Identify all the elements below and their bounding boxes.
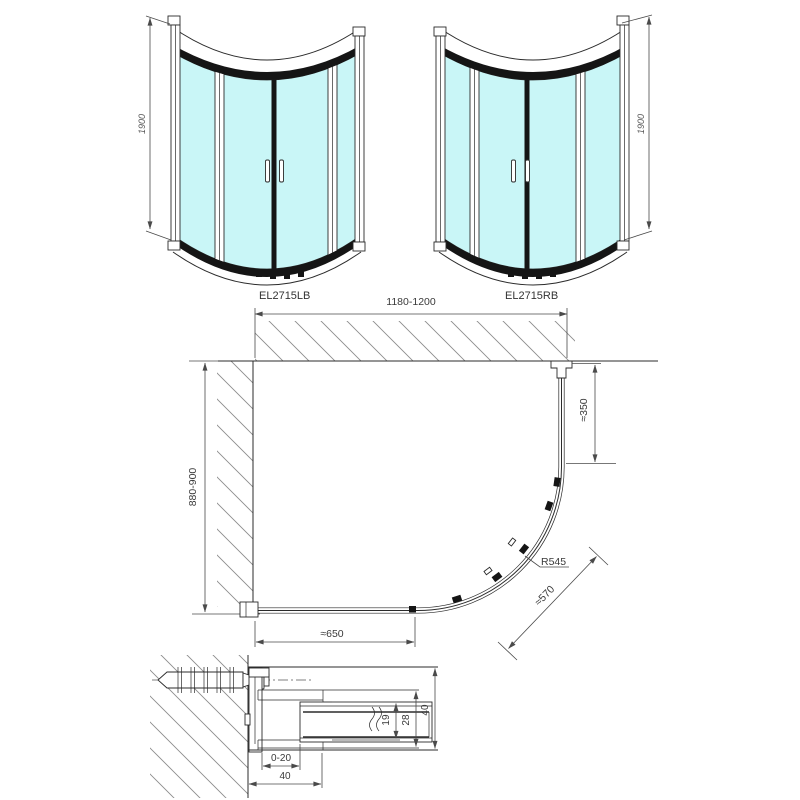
side-dimension: ≈350 xyxy=(566,364,616,464)
glass-panels-right-view xyxy=(440,53,626,269)
profile-detail-view: 19 28 40 0-20 40 xyxy=(150,655,438,798)
model-label-right: EL2715RB xyxy=(505,290,558,302)
front-dimension: ≈650 xyxy=(255,617,415,647)
left-wall-hatch xyxy=(217,361,253,607)
height-value-right: 1900 xyxy=(636,114,646,134)
top-arc-left-view xyxy=(172,27,362,60)
side-value: ≈350 xyxy=(578,398,590,421)
technical-drawing-page: 1900 EL2715LB xyxy=(0,0,800,800)
wall-profile-right-side xyxy=(353,27,365,251)
plan-view: 1180-1200 880-900 xyxy=(187,296,658,660)
front-value: ≈650 xyxy=(320,628,343,640)
radius-dimension: R545 xyxy=(525,556,569,568)
profile-outer-value: 40 xyxy=(420,704,431,716)
front-view-left: 1900 EL2715LB xyxy=(137,16,365,307)
bottom-wall-profile xyxy=(240,602,258,617)
height-dimension-left: 1900 xyxy=(137,16,171,240)
depth-value: 880-900 xyxy=(187,468,199,507)
glass-track xyxy=(258,378,564,613)
glass-channel-value: 19 xyxy=(381,714,392,726)
track-end-stop xyxy=(409,606,416,613)
wall-profile-left-side-rb xyxy=(434,27,446,251)
top-arc-right-view xyxy=(438,27,628,60)
shower-enclosure-drawing: 1900 EL2715LB xyxy=(0,0,800,800)
radius-value: R545 xyxy=(541,556,566,568)
bottom-width-value: 40 xyxy=(279,771,291,782)
front-view-right: 1900 EL2715RB xyxy=(434,15,652,307)
diagonal-value: ≈570 xyxy=(532,583,557,608)
model-label-left: EL2715LB xyxy=(259,290,310,302)
top-wall-bracket xyxy=(551,361,572,378)
height-value-left: 1900 xyxy=(137,114,147,134)
wall-profile-left-side xyxy=(168,16,180,250)
adjustment-value: 0-20 xyxy=(271,753,291,764)
width-value: 1180-1200 xyxy=(386,296,436,308)
top-wall-hatch xyxy=(255,321,575,361)
profile-inner-value: 28 xyxy=(401,714,412,726)
